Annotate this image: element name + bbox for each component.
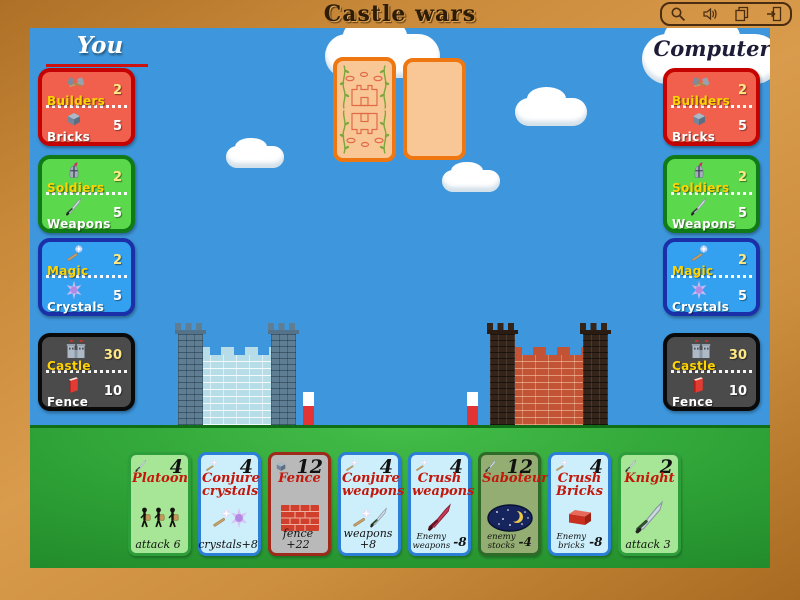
card-effect: fence +22 xyxy=(272,528,324,550)
castle-wall xyxy=(509,355,589,425)
soldiers-label: Soldiers xyxy=(672,181,729,195)
castle-tower xyxy=(583,330,608,425)
card-effect: enemy stocks xyxy=(487,533,515,550)
computer-castle xyxy=(490,330,608,425)
hand-card-conjure-crystals[interactable]: 4 Conjure crystals crystals+8 xyxy=(198,452,261,556)
builders-count: 2 xyxy=(113,83,122,98)
fence-label: Fence xyxy=(672,395,713,409)
panel-computer-castle: 30 Castle 10 Fence xyxy=(663,333,760,411)
card-effect: Enemy weapons xyxy=(412,533,450,550)
card-title: Conjure weapons xyxy=(342,472,397,499)
bricks-count: 5 xyxy=(738,119,747,134)
hand-card-crush-weapons[interactable]: 4 Crush weapons Enemy weapons -8 xyxy=(408,452,471,556)
big-sword-art xyxy=(621,499,678,537)
card-effect: attack 6 xyxy=(135,539,180,550)
card-effect: weapons +8 xyxy=(342,528,394,550)
cloud xyxy=(515,98,587,126)
your-fence xyxy=(303,392,314,425)
computer-fence xyxy=(467,392,478,425)
you-underline xyxy=(46,64,148,67)
fence-count: 10 xyxy=(104,384,122,399)
weapons-label: Weapons xyxy=(672,217,736,231)
card-back-art xyxy=(337,61,392,158)
draw-pile-card-back[interactable] xyxy=(333,57,396,162)
card-title: Conjure crystals xyxy=(202,472,257,499)
crystals-count: 5 xyxy=(738,289,747,304)
card-effect: attack 3 xyxy=(625,539,670,550)
card-effect-value: -4 xyxy=(519,535,532,549)
player-you-label: You xyxy=(40,32,160,59)
builders-count: 2 xyxy=(738,83,747,98)
builders-label: Builders xyxy=(672,94,730,108)
soldiers-count: 2 xyxy=(113,170,122,185)
magic-count: 2 xyxy=(113,253,122,268)
bricks-icon xyxy=(689,110,709,132)
castle-tower xyxy=(490,330,515,425)
hand-card-conjure-weapons[interactable]: 4 Conjure weapons weapons +8 xyxy=(338,452,401,556)
soldiers-count: 2 xyxy=(738,170,747,185)
castle-label: Castle xyxy=(672,359,716,373)
hand-card-knight[interactable]: 2 Knight attack 3 xyxy=(618,452,681,556)
soldiers-label: Soldiers xyxy=(47,181,104,195)
magic-count: 2 xyxy=(738,253,747,268)
panel-computer-magic: 2 Magic 5 Crystals xyxy=(663,238,760,316)
bricks-label: Bricks xyxy=(47,130,90,144)
soldiers-art xyxy=(131,499,188,537)
crystals-label: Crystals xyxy=(47,300,104,314)
castle-wall xyxy=(197,355,277,425)
cards-icon[interactable] xyxy=(734,6,751,23)
castle-count: 30 xyxy=(104,348,122,363)
crystals-label: Crystals xyxy=(672,300,729,314)
sound-icon[interactable] xyxy=(702,6,719,23)
card-effect-value: -8 xyxy=(453,535,466,549)
weapons-count: 5 xyxy=(113,206,122,221)
card-title: Crush Bricks xyxy=(552,472,607,499)
hand-card-crush-bricks[interactable]: 4 Crush Bricks Enemy bricks -8 xyxy=(548,452,611,556)
cloud xyxy=(226,146,284,168)
fence-count: 10 xyxy=(729,384,747,399)
castle-tower xyxy=(178,330,203,425)
magic-label: Magic xyxy=(672,264,713,278)
crystals-count: 5 xyxy=(113,289,122,304)
card-title: Platoon xyxy=(132,472,187,485)
wand-and-crystal-art xyxy=(201,499,258,537)
builders-label: Builders xyxy=(47,94,105,108)
window-toolbar xyxy=(660,2,792,26)
cloud xyxy=(442,170,500,192)
playfield: You Computer 2 Builders 5 Bricks 2 Soldi… xyxy=(30,28,770,568)
exit-icon[interactable] xyxy=(766,6,783,23)
panel-you-soldiers: 2 Soldiers 5 Weapons xyxy=(38,155,135,233)
panel-you-castle: 30 Castle 10 Fence xyxy=(38,333,135,411)
hand-card-saboteur[interactable]: 12 Saboteur enemy stocks -4 xyxy=(478,452,541,556)
card-effect-value: -8 xyxy=(589,535,602,549)
discard-slot-empty-card[interactable] xyxy=(403,58,466,160)
card-title: Saboteur xyxy=(482,472,537,485)
panel-you-magic: 2 Magic 5 Crystals xyxy=(38,238,135,316)
your-castle xyxy=(178,330,296,425)
hand-card-platoon[interactable]: 4 Platoon attack 6 xyxy=(128,452,191,556)
bricks-icon xyxy=(64,110,84,132)
weapons-label: Weapons xyxy=(47,217,111,231)
magic-label: Magic xyxy=(47,264,88,278)
card-title: Fence xyxy=(272,472,327,485)
bricks-count: 5 xyxy=(113,119,122,134)
zoom-icon[interactable] xyxy=(670,6,687,23)
panel-you-builders: 2 Builders 5 Bricks xyxy=(38,68,135,146)
castle-count: 30 xyxy=(729,348,747,363)
player-computer-label: Computer xyxy=(642,36,770,61)
panel-computer-builders: 2 Builders 5 Bricks xyxy=(663,68,760,146)
fence-label: Fence xyxy=(47,395,88,409)
card-effect: Enemy bricks xyxy=(557,533,587,550)
weapons-count: 5 xyxy=(738,206,747,221)
card-title: Crush weapons xyxy=(412,472,467,499)
panel-computer-soldiers: 2 Soldiers 5 Weapons xyxy=(663,155,760,233)
castle-tower xyxy=(271,330,296,425)
bricks-label: Bricks xyxy=(672,130,715,144)
castle-label: Castle xyxy=(47,359,91,373)
card-effect: crystals+8 xyxy=(198,539,258,550)
hand-card-fence[interactable]: 12 Fence fence +22 xyxy=(268,452,331,556)
card-title: Knight xyxy=(622,472,677,485)
